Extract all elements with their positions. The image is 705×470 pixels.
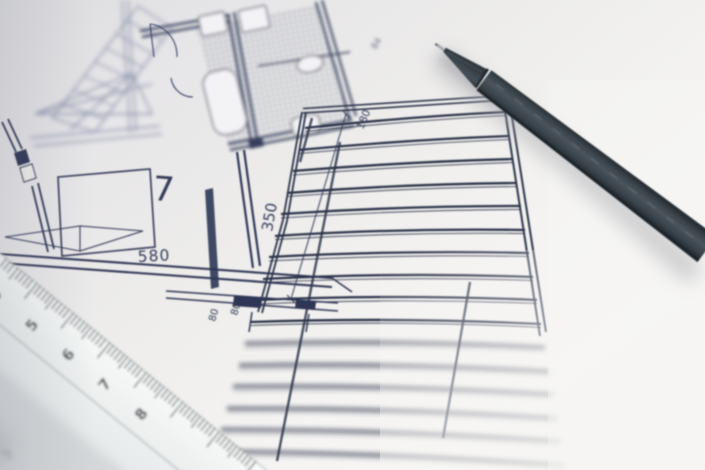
dimension-label-580: 580 [137,246,170,266]
pen-needle-point [435,43,437,45]
room-number: 7 [151,169,175,210]
photo-blueprint-scene: 84 [0,0,705,470]
left-vignette [0,0,95,470]
photo-canvas: 84 [0,0,705,470]
